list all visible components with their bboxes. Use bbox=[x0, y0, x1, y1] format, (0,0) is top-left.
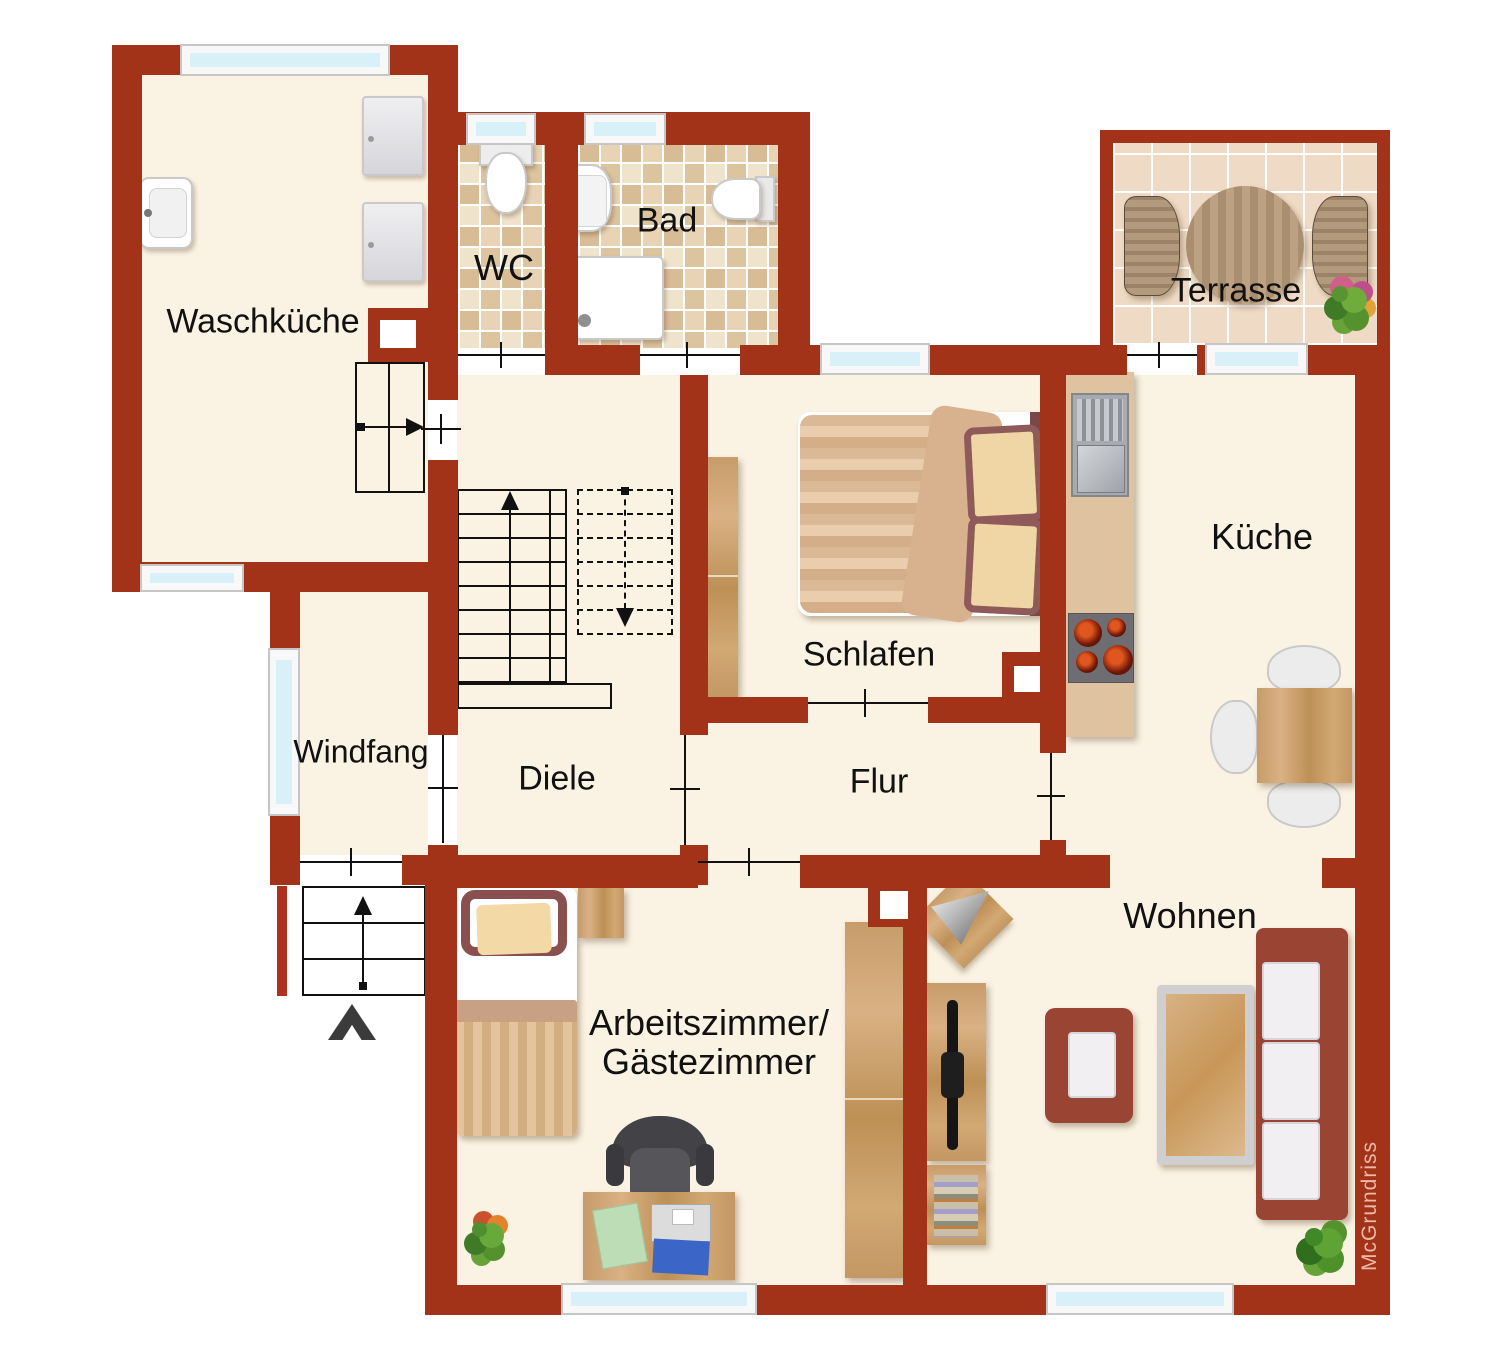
armchair bbox=[1045, 1008, 1133, 1123]
wall bbox=[270, 562, 300, 650]
stairs-right-arrow-icon bbox=[406, 418, 424, 436]
living-room-plant bbox=[1305, 1228, 1323, 1246]
room-label-diele: Diele bbox=[518, 760, 595, 799]
entrance-step-line bbox=[302, 922, 426, 924]
wall bbox=[800, 855, 1110, 888]
stairs-up-arrow-icon bbox=[501, 491, 519, 510]
terrace-plant bbox=[1332, 286, 1348, 302]
door-tick bbox=[428, 787, 458, 789]
window bbox=[584, 113, 666, 145]
terrace-wall bbox=[1377, 130, 1390, 345]
bed-pillow bbox=[964, 424, 1045, 524]
wall bbox=[457, 855, 698, 888]
office-wardrobe bbox=[845, 922, 903, 1278]
wall bbox=[755, 1285, 1048, 1315]
wall bbox=[425, 885, 457, 1315]
wall bbox=[740, 345, 823, 375]
single-bed bbox=[455, 888, 577, 1136]
door-tick bbox=[686, 342, 688, 368]
stairs-down-arrow-icon bbox=[616, 608, 634, 627]
entrance-step-strip bbox=[277, 886, 287, 996]
nightstand bbox=[578, 888, 624, 938]
kitchen-chair bbox=[1267, 645, 1341, 693]
wall bbox=[708, 697, 808, 723]
kitchen-sink-unit bbox=[1071, 393, 1129, 497]
stair-center-line bbox=[509, 508, 511, 704]
bed-pillow bbox=[476, 903, 552, 956]
entrance-arrow-dot bbox=[359, 982, 367, 990]
stove-hob bbox=[1068, 613, 1134, 683]
entrance-step-line bbox=[302, 958, 426, 960]
wall bbox=[112, 45, 142, 592]
room-label-flur: Flur bbox=[850, 763, 909, 802]
door-tick bbox=[440, 414, 442, 444]
room-label-terrasse: Terrasse bbox=[1171, 272, 1301, 311]
laptop-screen bbox=[651, 1204, 711, 1242]
kitchen-counter bbox=[1066, 372, 1134, 737]
books bbox=[934, 1175, 978, 1237]
tv-stand bbox=[941, 1052, 964, 1098]
wall bbox=[928, 345, 1127, 375]
sofa bbox=[1256, 928, 1348, 1220]
entrance-arrow-icon bbox=[328, 1004, 376, 1040]
stair-arrow-dot bbox=[357, 423, 365, 431]
wall bbox=[270, 855, 300, 885]
wall bbox=[1322, 858, 1390, 888]
bed-blanket bbox=[455, 1000, 577, 1024]
kitchen-chair bbox=[1210, 700, 1258, 774]
room-label-waschkueche: Waschküche bbox=[166, 303, 359, 342]
door-tick bbox=[500, 342, 502, 368]
washing-machine bbox=[362, 96, 424, 176]
paper-sheet bbox=[592, 1202, 648, 1269]
washing-machine bbox=[362, 202, 424, 282]
room-label-kueche: Küche bbox=[1211, 516, 1313, 558]
chimney-opening bbox=[880, 891, 908, 919]
window bbox=[1205, 343, 1308, 375]
bookshelf bbox=[926, 1165, 986, 1245]
room-label-schlafen: Schlafen bbox=[803, 636, 935, 675]
laptop-base bbox=[652, 1239, 710, 1276]
wall bbox=[903, 888, 927, 1285]
wall bbox=[545, 112, 578, 348]
terrace-chair bbox=[1312, 196, 1368, 296]
stair-bottom-step bbox=[457, 683, 612, 709]
wall bbox=[1040, 375, 1066, 753]
room-label-windfang: Windfang bbox=[293, 734, 428, 771]
bed-pillow bbox=[964, 516, 1045, 616]
kitchen-table bbox=[1257, 688, 1352, 783]
floor-plan: Waschküche WC Bad Terrasse Schlafen Küch… bbox=[0, 0, 1500, 1370]
double-bed bbox=[798, 412, 1048, 616]
door-threshold bbox=[808, 702, 928, 704]
door-tick bbox=[748, 848, 750, 876]
coffee-table bbox=[1157, 985, 1254, 1165]
wall bbox=[778, 112, 810, 375]
wall bbox=[425, 1285, 563, 1315]
windfang-floor bbox=[300, 592, 428, 855]
window bbox=[140, 564, 244, 592]
room-label-arbeitszimmer-1: Arbeitszimmer/ bbox=[589, 1002, 829, 1044]
watermark: McGrundriss bbox=[1358, 1128, 1388, 1283]
dashed-stair-center bbox=[624, 489, 626, 609]
door-tick bbox=[670, 788, 700, 790]
door-threshold bbox=[442, 735, 444, 843]
entrance-arrow-line bbox=[362, 904, 364, 988]
wall bbox=[402, 855, 458, 885]
stairs-up-arrow-icon bbox=[354, 896, 372, 915]
door-tick bbox=[350, 848, 352, 876]
door-threshold bbox=[1127, 354, 1197, 356]
dashed-stair-dot bbox=[621, 487, 629, 495]
room-label-arbeitszimmer-2: Gästezimmer bbox=[602, 1041, 816, 1083]
chimney-opening bbox=[1014, 666, 1040, 692]
desk bbox=[583, 1192, 735, 1280]
window bbox=[466, 113, 536, 145]
terrace-wall bbox=[1100, 130, 1113, 345]
bed-blanket-stripes bbox=[455, 1022, 577, 1136]
window bbox=[268, 648, 300, 816]
window bbox=[180, 44, 390, 76]
wall bbox=[680, 375, 708, 735]
room-label-wohnen: Wohnen bbox=[1123, 895, 1256, 937]
wall-pass-through-opening bbox=[380, 320, 416, 348]
laundry-sink bbox=[139, 177, 193, 249]
window bbox=[561, 1283, 757, 1315]
wall bbox=[1232, 1285, 1390, 1315]
terrace-wall bbox=[1100, 130, 1390, 143]
toilet-bowl bbox=[485, 152, 527, 214]
wall bbox=[428, 460, 458, 735]
window bbox=[1046, 1283, 1234, 1315]
office-plant bbox=[472, 1222, 487, 1237]
door-tick bbox=[864, 689, 866, 717]
window bbox=[820, 343, 930, 375]
door-threshold bbox=[684, 735, 686, 845]
dashed-stair-edge bbox=[577, 633, 673, 635]
room-label-wc: WC bbox=[474, 247, 534, 289]
door-threshold bbox=[640, 354, 740, 356]
kitchen-chair bbox=[1267, 780, 1341, 828]
toilet-bowl bbox=[711, 178, 761, 220]
door-tick bbox=[1037, 795, 1065, 797]
room-label-bad: Bad bbox=[637, 202, 698, 241]
wall bbox=[428, 45, 458, 400]
door-tick bbox=[1158, 342, 1160, 368]
wall bbox=[545, 345, 640, 375]
stair-rail bbox=[549, 489, 551, 709]
